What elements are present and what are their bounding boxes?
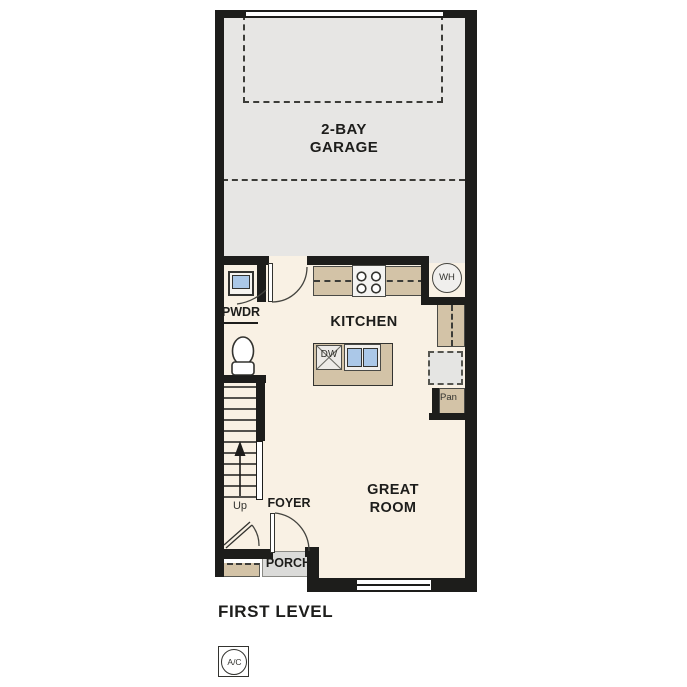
island-sink-basin-right — [363, 348, 378, 367]
floor-plan: 2-BAY GARAGE KITCHEN GREAT ROOM PWDR FOY… — [0, 0, 687, 687]
great-room-label: GREAT ROOM — [343, 481, 443, 517]
garage-door-symbol — [246, 10, 443, 18]
garage-label: 2-BAY GARAGE — [284, 121, 404, 157]
left-exterior-wall — [215, 10, 224, 577]
island-sink-basin-left — [347, 348, 362, 367]
powder-sink-basin — [232, 275, 250, 289]
porch-label: PORCH — [262, 556, 315, 570]
powder-wall-stub — [220, 322, 258, 324]
garage-entry-door-gap — [268, 256, 307, 265]
powder-label: PWDR — [217, 305, 265, 319]
garage-label-line2: GARAGE — [284, 139, 404, 157]
garage-door-clearance-dashed — [243, 14, 443, 103]
ac-unit-symbol: A/C — [218, 646, 249, 677]
front-door-leaf — [270, 513, 275, 553]
garage-entry-door-leaf — [268, 263, 273, 302]
great-room-floor-lower — [307, 545, 465, 578]
refrigerator-dashed — [428, 351, 463, 385]
garage-wall-segment-right — [307, 256, 426, 265]
dishwasher-label: DW — [316, 349, 342, 360]
pantry-label: Pan — [440, 392, 465, 403]
foyer-label: FOYER — [264, 496, 314, 510]
top-wall-cap-left — [215, 10, 246, 18]
upper-cabinet-dashed-line-right — [451, 305, 453, 346]
stove — [352, 265, 386, 297]
ac-unit-label: A/C — [219, 657, 250, 667]
great-room-label-line2: ROOM — [343, 499, 443, 517]
garage-label-line1: 2-BAY — [284, 121, 404, 139]
up-label: Up — [228, 500, 252, 512]
porch-step — [218, 563, 260, 577]
stairs-side-wall — [256, 375, 265, 441]
plan-title: FIRST LEVEL — [218, 602, 418, 622]
great-room-label-line1: GREAT — [343, 481, 443, 499]
garage-dashed-divider — [222, 179, 465, 181]
great-room-window — [356, 579, 432, 591]
kitchen-counter-right — [437, 304, 465, 347]
powder-wall-right — [257, 263, 266, 302]
water-heater-wall-bottom — [421, 297, 477, 305]
pantry-wall-stub — [432, 388, 439, 415]
stairs-railing — [256, 441, 263, 500]
window-mullion — [357, 584, 430, 586]
water-heater-label: WH — [432, 272, 462, 283]
pantry-wall-bottom — [429, 413, 477, 420]
kitchen-label: KITCHEN — [314, 314, 414, 330]
